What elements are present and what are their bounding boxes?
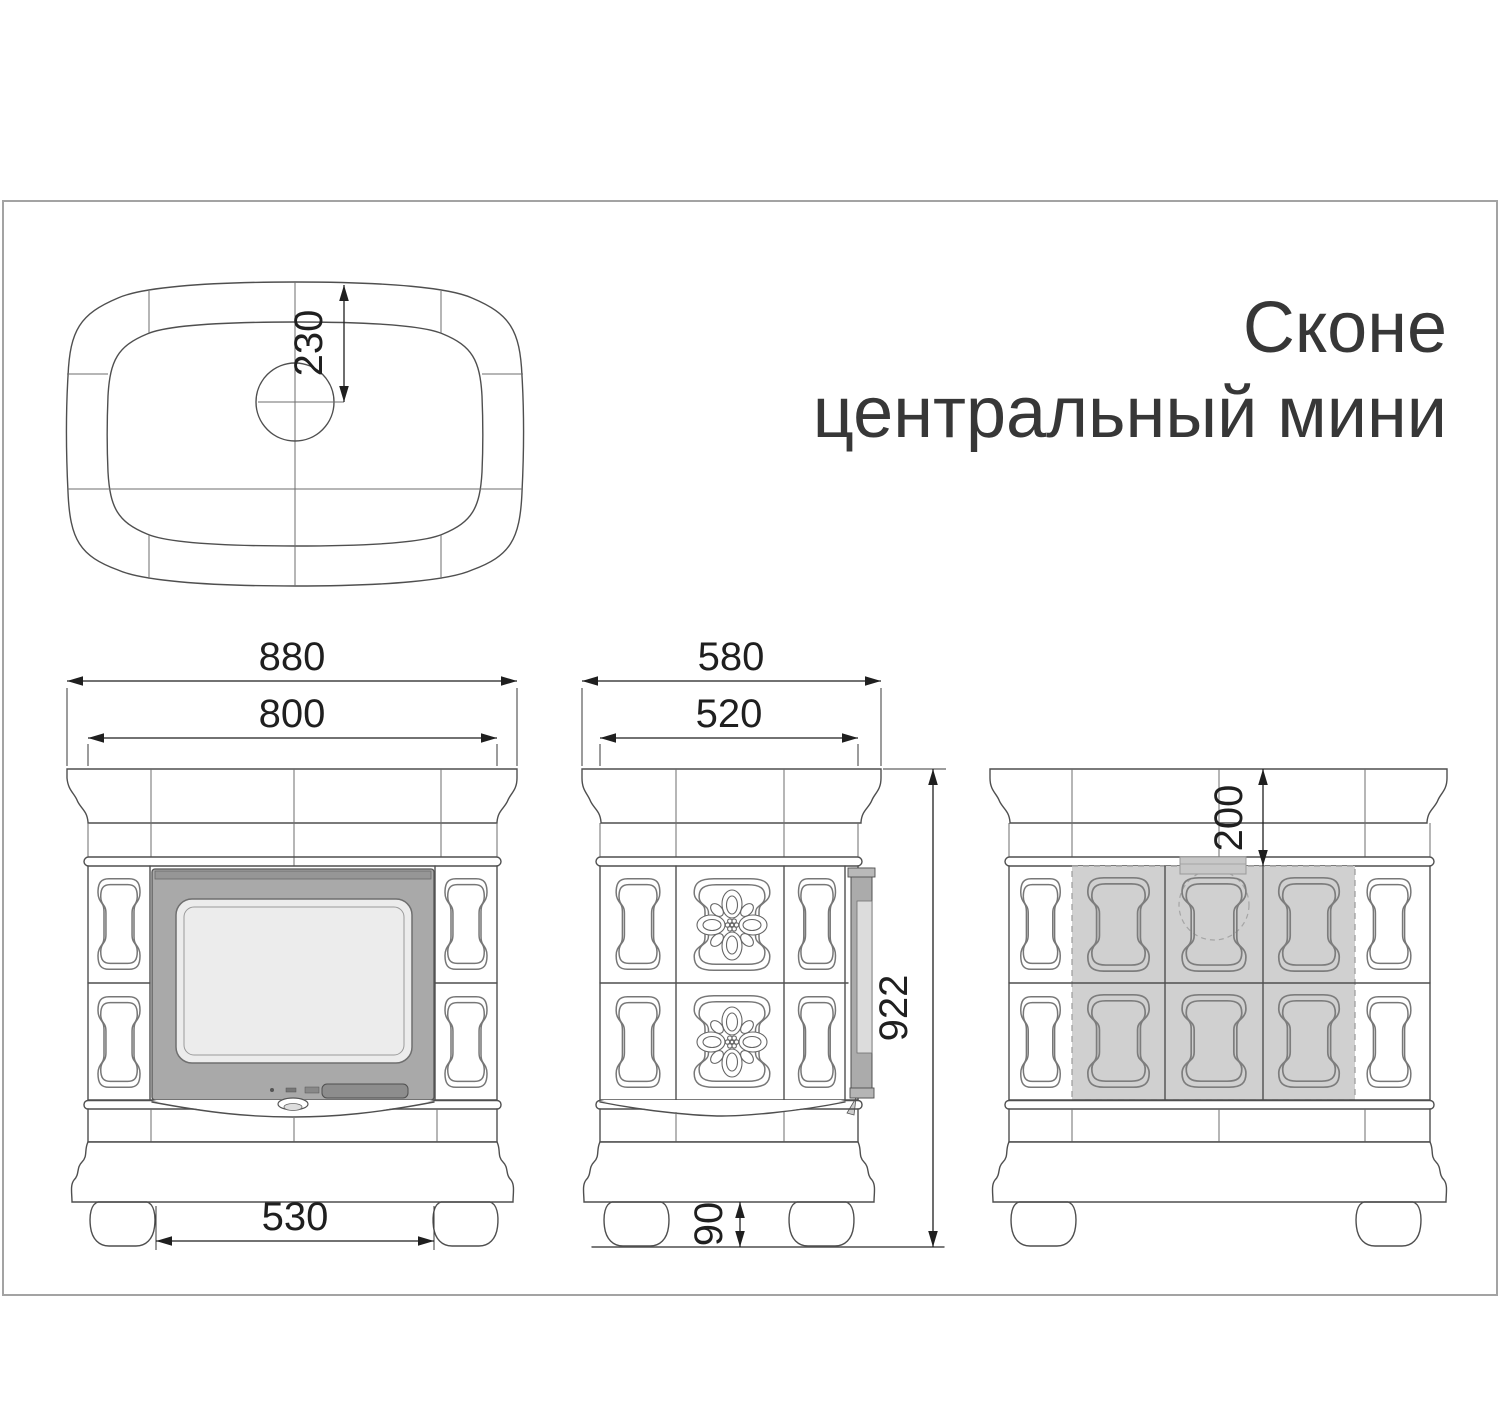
door-latch-knob [278, 1098, 308, 1111]
flue-stub [1180, 857, 1246, 874]
dim-label-520: 520 [696, 692, 763, 736]
dim-label-880: 880 [259, 635, 326, 679]
rear-base-skirt [993, 1142, 1447, 1202]
dim-label-530: 530 [262, 1195, 329, 1239]
door-handle [322, 1084, 408, 1098]
side-door-edge [847, 868, 875, 1115]
drawing-sheet: Сконе центральный мини 230 [0, 0, 1500, 1427]
dim-label-922: 922 [872, 975, 916, 1042]
title-line-2: центральный мини [813, 373, 1447, 453]
dim-label-90: 90 [687, 1202, 731, 1247]
dim-label-580: 580 [698, 635, 765, 679]
dim-label-230: 230 [287, 310, 331, 377]
fire-door [152, 869, 434, 1100]
title-line-1: Сконе [1243, 288, 1447, 368]
front-base-skirt [72, 1142, 514, 1202]
fire-door-top-strip [155, 871, 431, 879]
dim-label-800: 800 [259, 692, 326, 736]
fire-door-glass [176, 899, 412, 1063]
side-base-skirt [584, 1142, 875, 1202]
dim-label-200: 200 [1207, 785, 1251, 852]
